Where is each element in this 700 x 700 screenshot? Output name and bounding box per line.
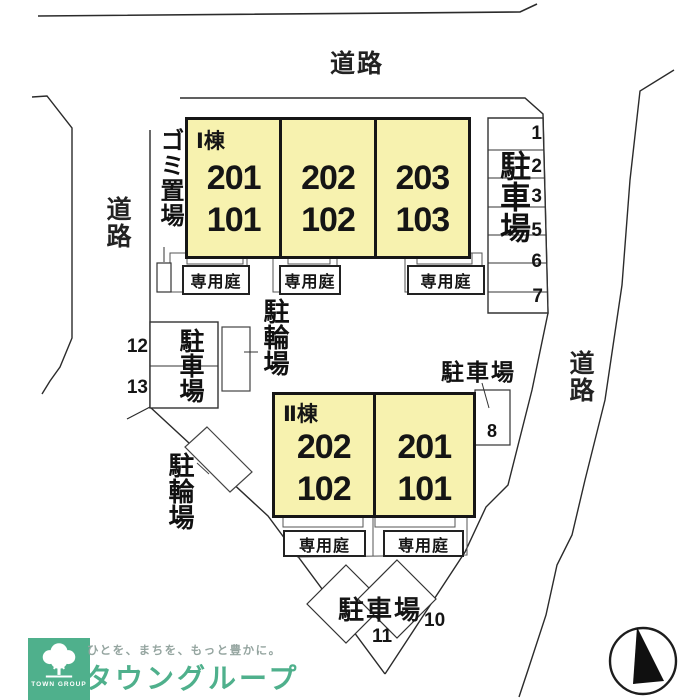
road-label-top: 道路	[330, 44, 384, 80]
building-2-unit-cell: 201 101	[373, 395, 474, 515]
parking-space-number: 12	[118, 336, 148, 358]
unit-numbers: 203 103	[377, 157, 468, 241]
garden-label: 専用庭	[182, 265, 250, 295]
garden-label: 専用庭	[283, 530, 366, 557]
parking-space-number: 3	[512, 186, 542, 208]
site-boundary-spur	[127, 407, 150, 419]
bicycle-parking-upper-box	[222, 327, 250, 391]
unit-lower: 102	[282, 199, 373, 241]
town-group-logo: TOWN GROUP	[28, 638, 90, 700]
building-1-unit-cell: 202 102	[279, 120, 373, 256]
parking-left-label: 駐車場	[172, 328, 208, 403]
parking-space-number: 2	[512, 156, 542, 178]
unit-upper: 203	[377, 157, 468, 199]
building-2-unit-cell: Ⅱ棟 202 102	[275, 395, 373, 515]
bicycle-parking-lower-label: 駐輪場	[162, 452, 199, 530]
unit-lower: 103	[377, 199, 468, 241]
unit-numbers: 201 101	[376, 426, 474, 510]
logo-text: TOWN GROUP	[31, 681, 86, 688]
unit-lower: 101	[376, 468, 474, 510]
garbage-area-box	[157, 263, 171, 292]
building-2: Ⅱ棟 202 102 201 101	[272, 392, 476, 518]
unit-lower: 102	[275, 468, 373, 510]
unit-numbers: 202 102	[282, 157, 373, 241]
unit-upper: 201	[188, 157, 279, 199]
unit-lower: 101	[188, 199, 279, 241]
bicycle-parking-upper-label: 駐輪場	[257, 298, 294, 376]
parking-space-number: 8	[480, 421, 504, 442]
parking-space-number: 13	[118, 377, 148, 399]
unit-upper: 202	[275, 426, 373, 468]
road-label-left: 道路	[99, 196, 135, 250]
parking-bottom-label: 駐車場	[338, 590, 422, 627]
unit-numbers: 201 101	[188, 157, 279, 241]
parking-space-number: 1	[512, 123, 542, 145]
road-edge-left	[32, 96, 72, 394]
road-label-right: 道路	[562, 350, 598, 404]
unit-upper: 202	[282, 157, 373, 199]
building-1: Ⅰ棟 201 101 202 102 203 103	[185, 117, 471, 259]
garden-label: 専用庭	[279, 265, 341, 295]
garden-label: 専用庭	[407, 265, 485, 295]
parking-space-number: 5	[512, 220, 542, 242]
compass-north-arrow-icon	[633, 627, 664, 684]
building-1-unit-cell: 203 103	[374, 120, 468, 256]
site-plan: 道路 道路 道路 ゴミ置場 Ⅰ棟 201 101 202 102 203 103	[0, 0, 700, 700]
parking-space-number: 6	[512, 251, 542, 273]
parking-space-number: 11	[372, 626, 392, 648]
unit-upper: 201	[376, 426, 474, 468]
garden-label: 専用庭	[383, 530, 464, 557]
tree-icon	[35, 638, 83, 684]
building-1-name: Ⅰ棟	[196, 125, 225, 155]
brand-name: タウングループ	[84, 657, 299, 697]
unit-numbers: 202 102	[275, 426, 373, 510]
road-edge-top	[38, 4, 537, 16]
building-1-unit-cell: Ⅰ棟 201 101	[188, 120, 279, 256]
tagline: ひとを、まちを、もっと豊かに。	[87, 642, 282, 658]
parking-space-number: 7	[513, 286, 543, 308]
building-2-name: Ⅱ棟	[283, 398, 318, 428]
parking-8-label: 駐車場	[441, 353, 516, 387]
garbage-area-label: ゴミ置場	[152, 128, 187, 228]
parking-space-number: 10	[424, 610, 445, 632]
